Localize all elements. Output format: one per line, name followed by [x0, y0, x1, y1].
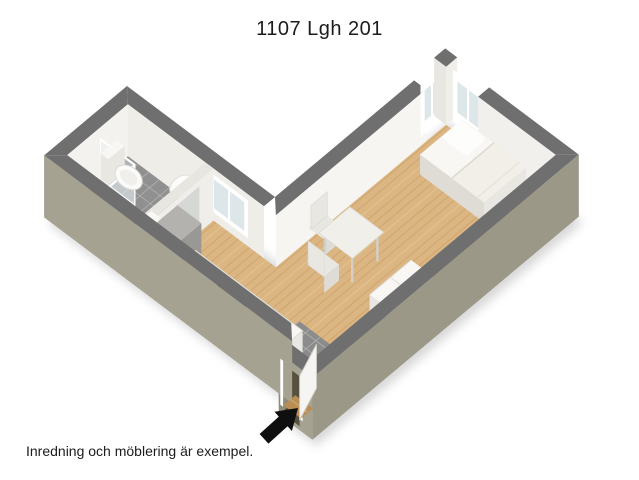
window-post: [421, 90, 425, 137]
door-jamb: [280, 359, 283, 407]
page-title: 1107 Lgh 201: [0, 18, 639, 41]
entrance-arrow-icon: [260, 408, 298, 444]
floorplan-rendering: [0, 0, 639, 480]
window-post: [453, 78, 457, 125]
pillar-front: [434, 58, 446, 125]
caption: Inredning och möblering är exempel.: [26, 443, 253, 459]
floorplan-page: 1107 Lgh 201 Inredning och möblering är …: [0, 0, 639, 480]
